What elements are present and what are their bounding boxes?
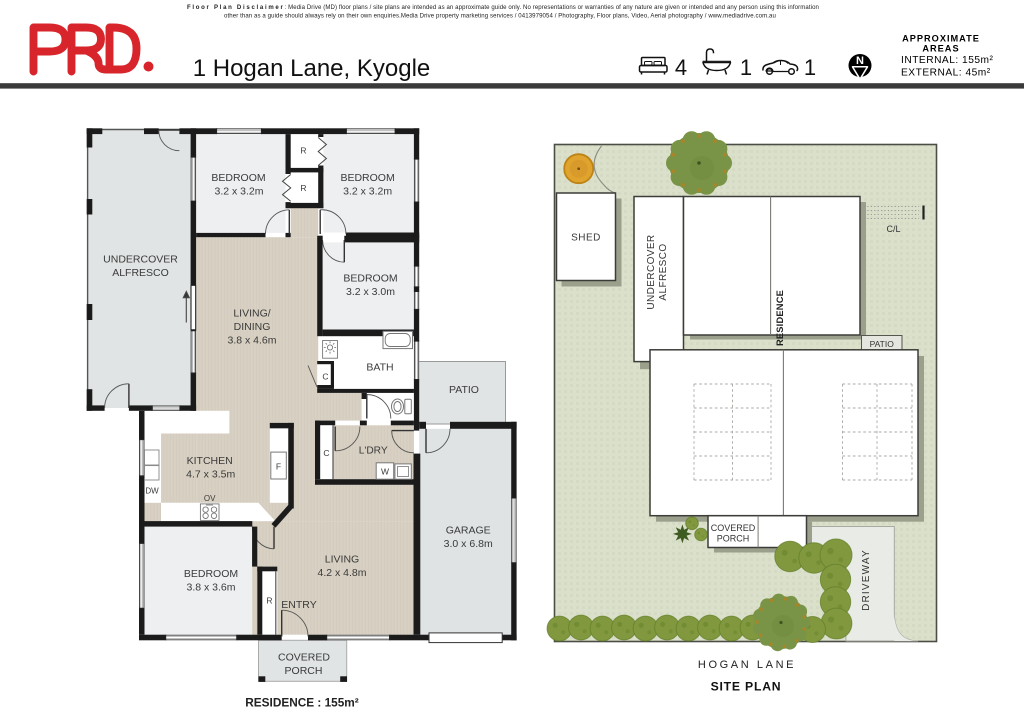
svg-text:DW: DW: [145, 487, 159, 496]
svg-text:3.0 x 6.8m: 3.0 x 6.8m: [444, 538, 493, 550]
svg-text:4.2 x 4.8m: 4.2 x 4.8m: [317, 567, 366, 579]
svg-text:PATIO: PATIO: [870, 339, 895, 349]
svg-text:BEDROOM: BEDROOM: [340, 172, 394, 184]
svg-text:C/L: C/L: [886, 224, 900, 234]
svg-text:ALFRESCO: ALFRESCO: [658, 243, 669, 300]
svg-text:APPROXIMATE: APPROXIMATE: [902, 34, 980, 44]
svg-text:L'DRY: L'DRY: [359, 446, 388, 457]
svg-text:HOGAN LANE: HOGAN LANE: [698, 659, 796, 671]
svg-text:PATIO: PATIO: [449, 384, 479, 396]
svg-text:F: F: [276, 462, 281, 472]
svg-text:DRIVEWAY: DRIVEWAY: [861, 549, 872, 611]
svg-text:ENTRY: ENTRY: [281, 599, 316, 611]
svg-text:3.8 x 3.6m: 3.8 x 3.6m: [186, 582, 235, 594]
svg-text:LIVING/: LIVING/: [233, 308, 270, 320]
svg-text:3.2 x 3.2m: 3.2 x 3.2m: [214, 186, 263, 198]
svg-text:N: N: [856, 55, 864, 67]
svg-text:4: 4: [675, 55, 687, 80]
svg-text:R: R: [300, 146, 306, 156]
svg-text:COVERED: COVERED: [711, 523, 756, 533]
svg-text:UNDERCOVER: UNDERCOVER: [103, 254, 178, 266]
svg-text:C: C: [323, 448, 329, 458]
svg-text:LIVING: LIVING: [325, 554, 359, 566]
svg-text:SHED: SHED: [571, 233, 601, 244]
svg-text:C: C: [322, 372, 328, 382]
svg-text:SITE PLAN: SITE PLAN: [711, 680, 782, 694]
svg-text:UNDERCOVER: UNDERCOVER: [646, 234, 657, 309]
svg-text:COVERED: COVERED: [278, 652, 330, 664]
svg-text:PORCH: PORCH: [717, 534, 750, 544]
svg-text:BEDROOM: BEDROOM: [211, 172, 265, 184]
svg-text:1: 1: [740, 55, 752, 80]
svg-text:R: R: [300, 183, 306, 193]
svg-text:3.2 x 3.2m: 3.2 x 3.2m: [343, 186, 392, 198]
svg-text:BEDROOM: BEDROOM: [343, 273, 397, 285]
svg-text:INTERNAL: 155m²: INTERNAL: 155m²: [901, 55, 994, 66]
svg-text:AREAS: AREAS: [922, 44, 959, 54]
svg-text:R: R: [266, 596, 272, 606]
svg-text:BEDROOM: BEDROOM: [184, 568, 238, 580]
svg-text:RESIDENCE: RESIDENCE: [775, 290, 785, 346]
svg-text:EXTERNAL: 45m²: EXTERNAL: 45m²: [901, 68, 991, 79]
svg-text:KITCHEN: KITCHEN: [187, 455, 233, 467]
svg-text:Floor Plan Disclaimer: Media D: Floor Plan Disclaimer: Media Drive (MD) …: [187, 5, 819, 11]
svg-text:PORCH: PORCH: [285, 665, 323, 677]
svg-text:BATH: BATH: [366, 362, 393, 374]
svg-text:W: W: [381, 467, 389, 477]
svg-text:RESIDENCE : 155m²: RESIDENCE : 155m²: [245, 696, 358, 710]
svg-text:OV: OV: [204, 494, 216, 503]
svg-text:1 Hogan Lane, Kyogle: 1 Hogan Lane, Kyogle: [193, 55, 431, 82]
svg-text:ALFRESCO: ALFRESCO: [112, 267, 169, 279]
svg-text:DINING: DINING: [234, 321, 271, 333]
svg-text:other than as a guide should a: other than as a guide should always rely…: [224, 14, 776, 20]
svg-text:1: 1: [804, 55, 816, 80]
svg-text:4.7 x 3.5m: 4.7 x 3.5m: [186, 469, 235, 481]
svg-text:3.8 x 4.6m: 3.8 x 4.6m: [227, 335, 276, 347]
svg-text:GARAGE: GARAGE: [446, 525, 491, 537]
svg-text:3.2 x 3.0m: 3.2 x 3.0m: [346, 286, 395, 298]
